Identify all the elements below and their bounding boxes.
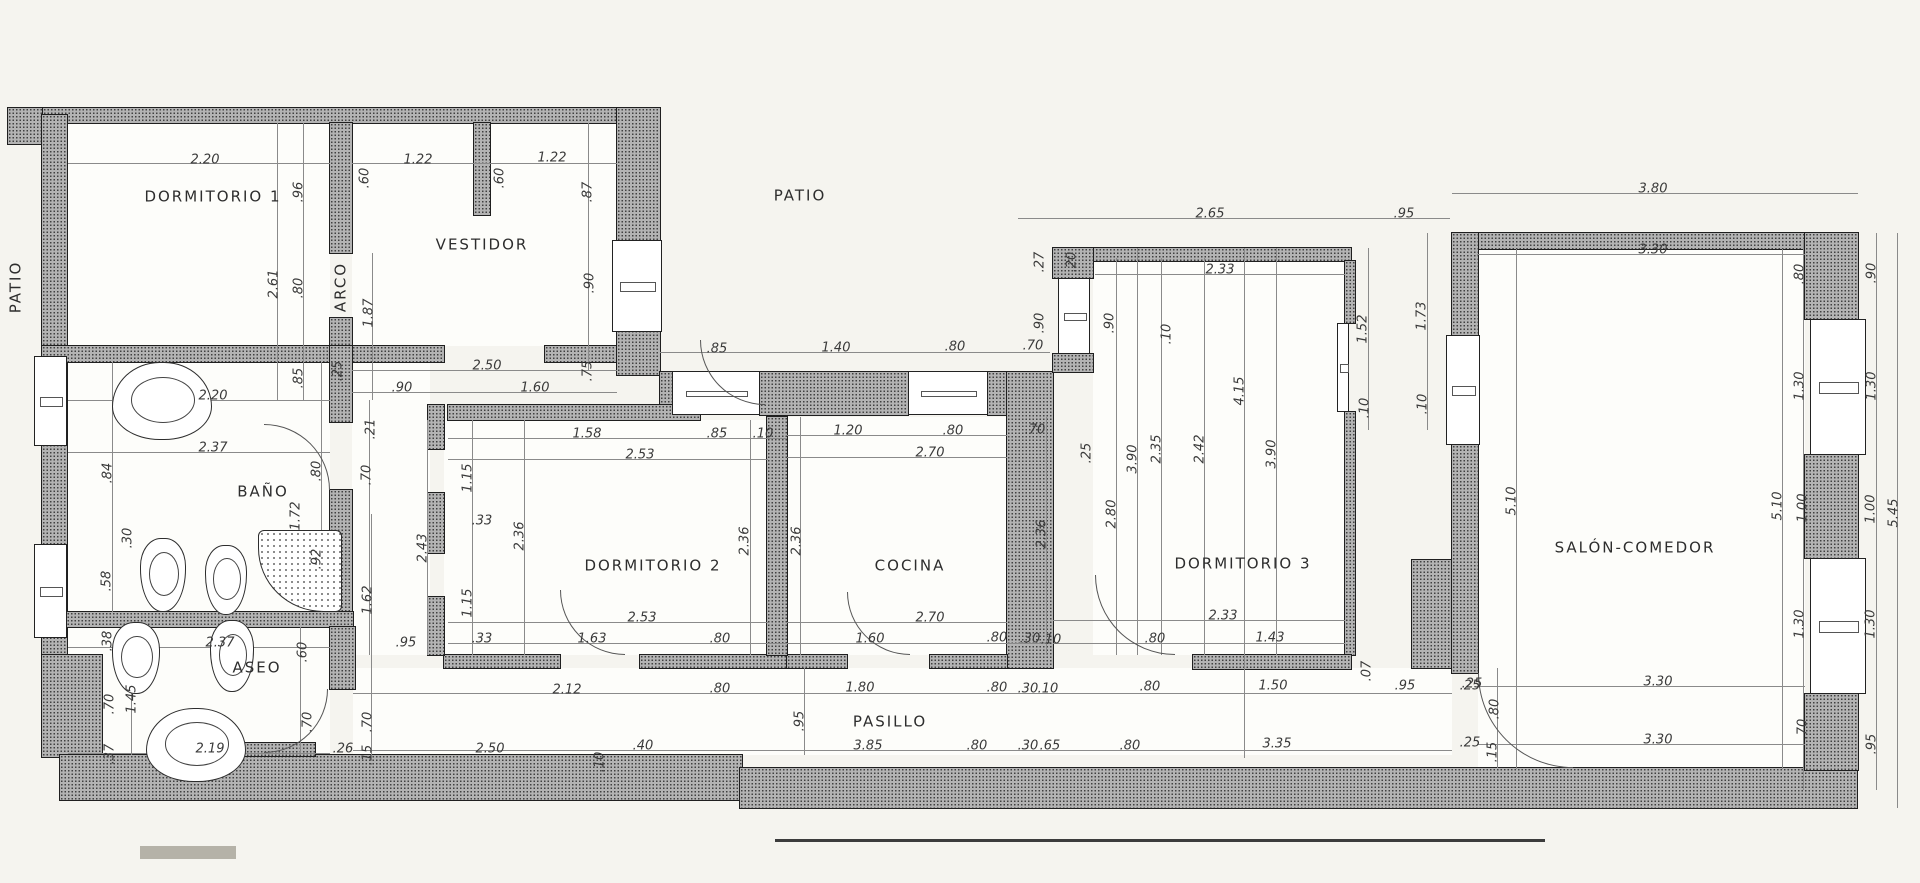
dimension-label: 3.30: [1644, 676, 1673, 689]
dimension-label: .70: [104, 694, 117, 715]
room-label-pasillo: PASILLO: [853, 715, 927, 730]
dimension-label: 1.30: [1865, 610, 1878, 639]
wall-segment: [8, 108, 42, 144]
dimension-label: .90: [1034, 313, 1047, 334]
dimension-label: .33: [472, 515, 493, 528]
dimension-label: 3.90: [1127, 445, 1140, 474]
window: [1337, 323, 1349, 412]
wall-segment: [42, 612, 353, 627]
margin-mark: [140, 846, 236, 859]
dimension-label: .90: [1104, 313, 1117, 334]
dimension-label: .10: [594, 752, 607, 773]
window: [34, 356, 67, 446]
toilet-bowl: [121, 636, 152, 679]
dimension-label: 2.53: [628, 612, 657, 625]
wall-segment: [930, 655, 1007, 668]
wall-segment: [1345, 261, 1355, 323]
dimension-label: .27: [1034, 252, 1047, 273]
dimension-label: .80: [710, 683, 731, 696]
room-label-arco: ARCO: [334, 262, 349, 312]
dimension-label: 1.40: [822, 342, 851, 355]
dimension-label: 1.87: [363, 299, 376, 328]
dimension-label: .60: [297, 642, 310, 663]
dimension-label: 3.30: [1639, 244, 1668, 257]
toilet-bowl: [149, 552, 179, 596]
dimension-label: 2.61: [268, 270, 281, 299]
dimension-label: 2.19: [196, 743, 225, 756]
dimension-label: .80: [1120, 740, 1141, 753]
dimension-line: [787, 457, 1007, 458]
dimension-label: 1.45: [126, 685, 139, 714]
dimension-label: .40: [633, 740, 654, 753]
dimension-label: .25: [332, 361, 345, 382]
wall-segment: [1805, 455, 1858, 558]
dimension-label: 1.60: [856, 633, 885, 646]
wall-segment: [988, 372, 1008, 415]
dimension-label: .70: [1023, 340, 1044, 353]
dimension-label: 2.53: [626, 449, 655, 462]
dimension-label: 1.22: [538, 152, 567, 165]
dimension-label: .90: [584, 273, 597, 294]
dimension-label: .85: [707, 428, 728, 441]
dimension-line: [303, 123, 304, 400]
dimension-label: .92: [311, 549, 324, 570]
dimension-label: .33: [472, 633, 493, 646]
dimension-label: .70: [1797, 719, 1810, 740]
room-label-dormitorio-3: DORMITORIO 3: [1174, 557, 1311, 572]
dimension-label: 1.30: [1794, 610, 1807, 639]
wall-segment: [42, 346, 353, 362]
wall-segment: [1805, 694, 1858, 770]
dimension-label: .15: [362, 745, 375, 766]
wall-segment: [617, 330, 660, 375]
dimension-label: 2.20: [199, 390, 228, 403]
dimension-label: .80: [987, 632, 1008, 645]
dimension-line: [1018, 218, 1450, 219]
dimension-label: .95: [1395, 680, 1416, 693]
dimension-label: 2.36: [1036, 520, 1049, 549]
dimension-label: .10: [1038, 683, 1059, 696]
dimension-label: .80: [293, 278, 306, 299]
dimension-label: 1.80: [846, 682, 875, 695]
dimension-label: .95: [396, 637, 417, 650]
wall-segment: [740, 768, 1857, 808]
dimension-label: 1.00: [1865, 495, 1878, 524]
wall-segment: [428, 597, 444, 655]
dimension-label: 5.10: [1506, 487, 1519, 516]
dimension-label: 1.72: [290, 502, 303, 531]
room-label-dormitorio-2: DORMITORIO 2: [584, 559, 721, 574]
dimension-label: 2.20: [191, 154, 220, 167]
dimension-label: 2.50: [473, 360, 502, 373]
wall-segment: [1805, 233, 1858, 319]
wall-segment: [767, 417, 787, 655]
room-label-vestidor: VESTIDOR: [436, 238, 529, 253]
wall-segment: [352, 346, 444, 362]
dimension-line: [448, 459, 768, 460]
dimension-line: [352, 163, 617, 164]
wall-segment: [330, 123, 352, 253]
dimension-label: 2.36: [514, 522, 527, 551]
dimension-label: 1.30: [1866, 372, 1879, 401]
room-label-dormitorio-1: DORMITORIO 1: [144, 190, 281, 205]
room-label-sal-n-comedor: SALÓN-COMEDOR: [1555, 541, 1716, 556]
wall-segment: [1452, 445, 1478, 673]
dimension-label: .85: [293, 368, 306, 389]
dimension-label: .07: [1361, 661, 1374, 682]
window: [34, 544, 67, 638]
dimension-label: .26: [333, 743, 354, 756]
dimension-label: .80: [311, 461, 324, 482]
dimension-label: .20: [1066, 252, 1079, 273]
dimension-label: 2.33: [1206, 264, 1235, 277]
room-label-ba-o: BAÑO: [237, 485, 289, 500]
dimension-label: .80: [945, 341, 966, 354]
dimension-label: .90: [1866, 263, 1879, 284]
dimension-label: 2.33: [1209, 610, 1238, 623]
dimension-label: .10: [1359, 398, 1372, 419]
dimension-label: 2.70: [916, 447, 945, 460]
dimension-label: .87: [582, 182, 595, 203]
dimension-label: 2.35: [1151, 435, 1164, 464]
dimension-label: .70: [1025, 424, 1046, 437]
dimension-label: 2.70: [916, 612, 945, 625]
wall-segment: [330, 627, 355, 689]
wall-segment: [1053, 248, 1351, 261]
dimension-label: .80: [987, 682, 1008, 695]
dimension-label: .30: [1018, 683, 1039, 696]
dimension-label: .80: [1145, 633, 1166, 646]
wall-segment: [428, 405, 444, 449]
wall-segment: [448, 405, 700, 420]
window: [908, 371, 988, 415]
dimension-label: .15: [1487, 742, 1500, 763]
wall-segment: [760, 372, 908, 415]
dimension-label: .10: [753, 428, 774, 441]
room-label-cocina: COCINA: [875, 559, 946, 574]
dimension-line: [1244, 248, 1245, 758]
dimension-label: 3.30: [1644, 734, 1673, 747]
dimension-label: 2.42: [1194, 435, 1207, 464]
dimension-label: 2.36: [739, 527, 752, 556]
bidet-bowl: [213, 558, 241, 599]
dimension-label: 1.73: [1416, 302, 1429, 331]
dimension-label: 3.85: [854, 740, 883, 753]
dimension-line: [472, 420, 473, 655]
dimension-label: .70: [361, 465, 374, 486]
dimension-label: 3.90: [1266, 440, 1279, 469]
dimension-label: 4.15: [1234, 377, 1247, 406]
dimension-label: .80: [967, 740, 988, 753]
dimension-label: .96: [293, 182, 306, 203]
dimension-label: 1.30: [1794, 372, 1807, 401]
dimension-label: .95: [1866, 734, 1879, 755]
dimension-label: 1.52: [1357, 315, 1370, 344]
wall-segment: [617, 108, 660, 242]
dimension-label: .30: [1018, 740, 1039, 753]
window: [1446, 335, 1480, 445]
dimension-line: [1053, 643, 1345, 644]
dimension-line: [277, 123, 278, 400]
dimension-label: 1.15: [462, 589, 475, 618]
dimension-label: .30: [122, 528, 135, 549]
dimension-label: .80: [1794, 264, 1807, 285]
room-label-patio: PATIO: [774, 189, 827, 204]
dimension-label: 1.60: [521, 382, 550, 395]
dimension-label: .75: [582, 361, 595, 382]
dimension-label: 2.65: [1196, 208, 1225, 221]
dimension-label: 1.63: [578, 633, 607, 646]
dimension-label: .95: [1394, 208, 1415, 221]
dimension-label: .25: [1460, 737, 1481, 750]
wall-segment: [330, 346, 352, 422]
dimension-label: .21: [365, 419, 378, 440]
floor-plan: 2.201.221.222.65.953.803.302.33.60.60.87…: [0, 0, 1920, 883]
wall-segment: [640, 655, 787, 668]
wall-segment: [42, 655, 102, 757]
dimension-line: [787, 435, 1007, 436]
room-label-patio: PATIO: [9, 261, 24, 314]
dimension-label: 1.43: [1256, 632, 1285, 645]
dimension-label: 1.15: [462, 464, 475, 493]
dimension-line: [787, 643, 1047, 644]
dimension-label: 2.50: [476, 743, 505, 756]
dimension-label: 3.35: [1263, 738, 1292, 751]
dimension-label: 2.12: [553, 684, 582, 697]
dimension-label: .60: [359, 168, 372, 189]
dimension-label: .58: [101, 571, 114, 592]
dimension-label: .85: [707, 343, 728, 356]
window: [1810, 319, 1866, 455]
dimension-label: .25: [1462, 678, 1483, 691]
margin-mark: [775, 839, 1545, 842]
wall-segment: [1412, 560, 1452, 668]
dimension-label: .84: [102, 463, 115, 484]
dimension-label: .80: [943, 425, 964, 438]
dimension-label: .10: [1041, 634, 1062, 647]
wall-segment: [787, 655, 847, 668]
dimension-label: 2.80: [1106, 500, 1119, 529]
wall-segment: [1452, 233, 1478, 335]
dimension-label: 2.37: [199, 442, 228, 455]
dimension-label: .38: [102, 631, 115, 652]
dimension-line: [1053, 620, 1345, 621]
dimension-label: 2.37: [206, 637, 235, 650]
dimension-label: 1.62: [362, 586, 375, 615]
dimension-label: 1.00: [1797, 494, 1810, 523]
dimension-label: .65: [1040, 740, 1061, 753]
wall-segment: [444, 655, 560, 668]
dimension-label: 1.50: [1259, 680, 1288, 693]
sink-basin: [131, 377, 196, 423]
dimension-label: 3.80: [1639, 183, 1668, 196]
dimension-label: .80: [1489, 699, 1502, 720]
wall-segment: [545, 346, 617, 362]
dimension-line: [588, 123, 589, 370]
dimension-label: .25: [1081, 443, 1094, 464]
dimension-label: .37: [104, 744, 117, 765]
dimension-label: .90: [392, 382, 413, 395]
room-label-aseo: ASEO: [232, 661, 281, 676]
dimension-label: .10: [1161, 324, 1174, 345]
dimension-label: .80: [710, 633, 731, 646]
wall-segment: [8, 108, 660, 123]
dimension-label: 2.43: [417, 534, 430, 563]
sink-fixture: [112, 362, 212, 440]
dimension-label: .70: [362, 712, 375, 733]
wall-segment: [330, 318, 352, 346]
dimension-label: .60: [494, 168, 507, 189]
dimension-label: 1.22: [404, 154, 433, 167]
wall-segment: [474, 123, 490, 215]
dimension-line: [448, 438, 787, 439]
dimension-label: 5.45: [1888, 499, 1901, 528]
dimension-label: .30: [1020, 633, 1041, 646]
dimension-label: .80: [1140, 681, 1161, 694]
dimension-label: 1.58: [573, 428, 602, 441]
window: [1810, 558, 1866, 694]
window: [1058, 278, 1090, 354]
window: [612, 240, 662, 332]
dimension-label: 1.20: [834, 425, 863, 438]
dimension-label: 2.36: [791, 527, 804, 556]
wall-segment: [1345, 412, 1355, 655]
dimension-label: .95: [794, 711, 807, 732]
wall-segment: [1193, 655, 1351, 669]
wall-segment: [1053, 354, 1093, 372]
dimension-label: 5.10: [1772, 492, 1785, 521]
dimension-label: .10: [1417, 394, 1430, 415]
dimension-label: .70: [302, 712, 315, 733]
